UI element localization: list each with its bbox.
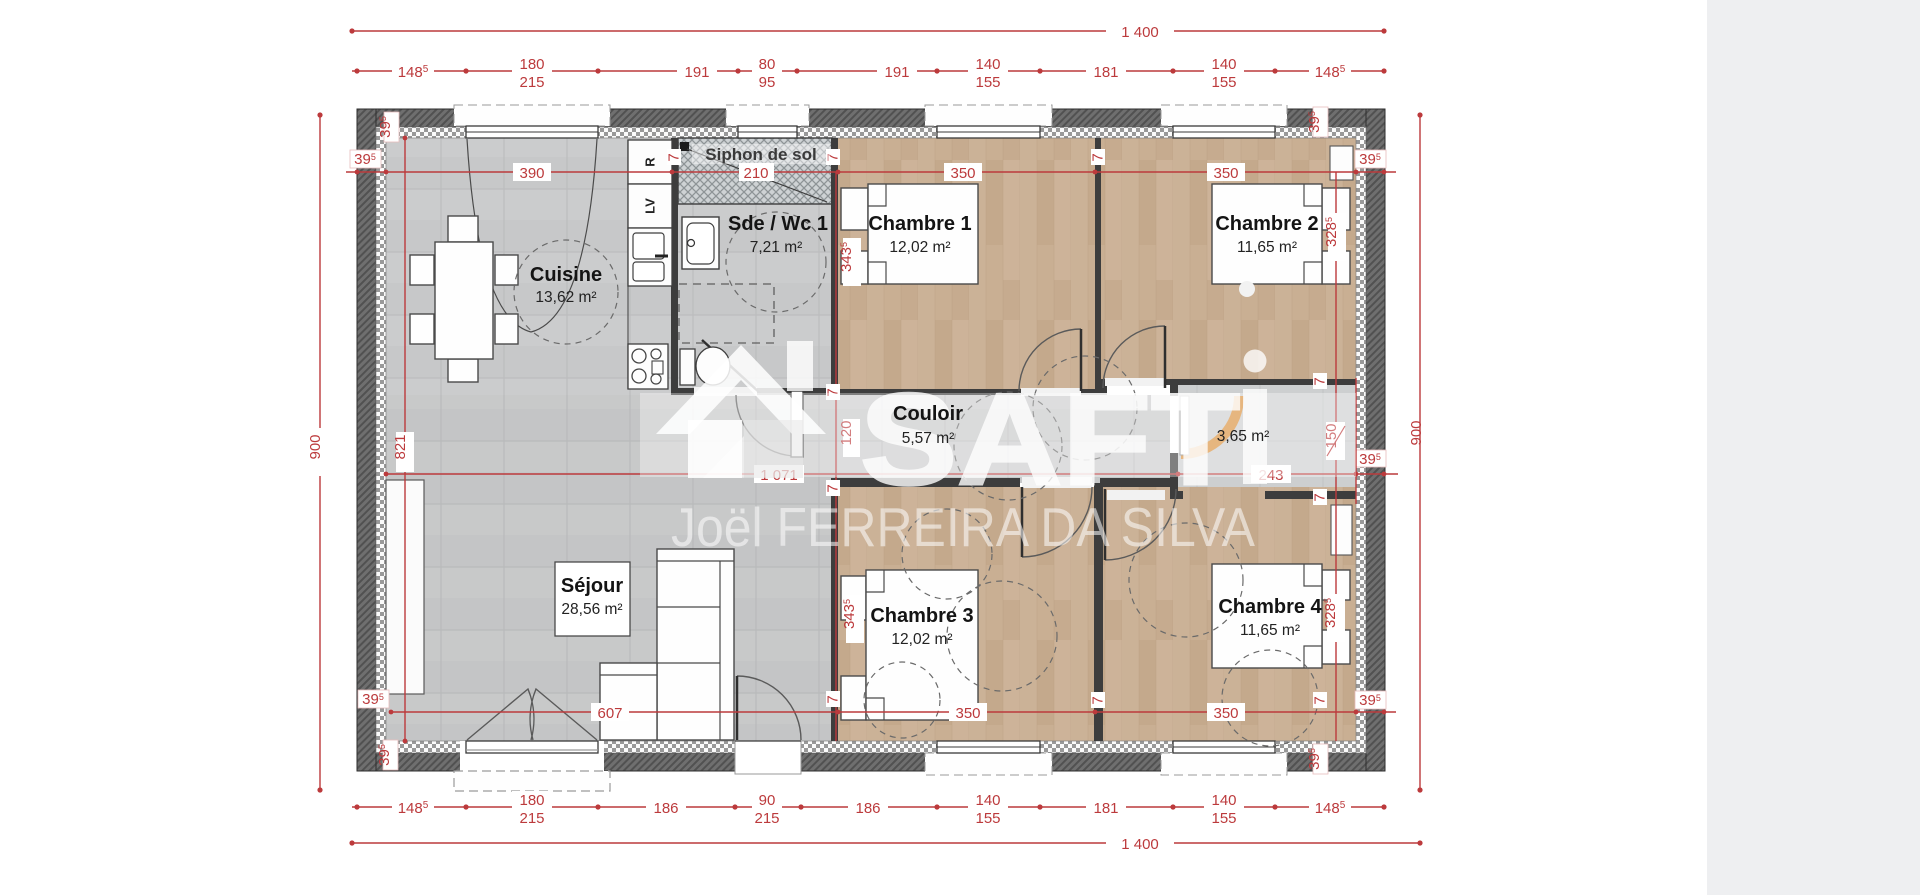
svg-text:90: 90 [759, 792, 776, 809]
svg-text:215: 215 [754, 810, 779, 827]
svg-text:7: 7 [825, 484, 842, 492]
svg-text:215: 215 [519, 810, 544, 827]
svg-text:80: 80 [759, 56, 776, 73]
svg-text:180: 180 [519, 56, 544, 73]
svg-text:180: 180 [519, 792, 544, 809]
svg-text:Cuisine: Cuisine [530, 264, 602, 286]
svg-text:155: 155 [1211, 810, 1236, 827]
svg-text:Joël FERREIRA DA SILVA: Joël FERREIRA DA SILVA [671, 496, 1255, 558]
svg-text:155: 155 [975, 810, 1000, 827]
svg-text:140: 140 [975, 792, 1000, 809]
svg-text:1 400: 1 400 [1121, 24, 1159, 41]
svg-text:11,65 m²: 11,65 m² [1237, 239, 1297, 256]
svg-text:Couloir: Couloir [893, 403, 963, 425]
svg-text:7: 7 [1090, 696, 1107, 704]
svg-text:350: 350 [1213, 165, 1238, 182]
svg-text:350: 350 [1213, 705, 1238, 722]
svg-text:181: 181 [1093, 800, 1118, 817]
svg-text:Chambre 4: Chambre 4 [1218, 596, 1322, 618]
svg-text:12,02 m²: 12,02 m² [889, 239, 950, 256]
svg-text:7: 7 [1312, 696, 1329, 704]
svg-text:821: 821 [392, 434, 409, 459]
svg-text:181: 181 [1093, 64, 1118, 81]
svg-text:155: 155 [975, 74, 1000, 91]
svg-text:12,02 m²: 12,02 m² [891, 631, 952, 648]
svg-text:155: 155 [1211, 74, 1236, 91]
svg-text:Siphon de sol: Siphon de sol [705, 145, 816, 164]
svg-text:390: 390 [519, 165, 544, 182]
svg-text:900: 900 [307, 434, 324, 459]
svg-text:7: 7 [1312, 377, 1329, 385]
svg-text:350: 350 [955, 705, 980, 722]
svg-text:140: 140 [1211, 56, 1236, 73]
svg-text:1 400: 1 400 [1121, 836, 1159, 853]
svg-text:Séjour: Séjour [561, 575, 623, 597]
svg-text:350: 350 [950, 165, 975, 182]
svg-text:210: 210 [743, 165, 768, 182]
svg-text:7: 7 [825, 695, 842, 703]
svg-text:Chambre 1: Chambre 1 [868, 213, 971, 235]
svg-text:95: 95 [759, 74, 776, 91]
svg-text:Chambre 3: Chambre 3 [870, 605, 973, 627]
svg-text:11,65 m²: 11,65 m² [1240, 622, 1300, 639]
svg-text:7: 7 [1312, 493, 1329, 501]
svg-text:191: 191 [884, 64, 909, 81]
svg-text:Sde / Wc 1: Sde / Wc 1 [728, 213, 828, 235]
svg-text:7: 7 [666, 153, 683, 161]
svg-text:13,62 m²: 13,62 m² [535, 289, 596, 306]
svg-text:191: 191 [684, 64, 709, 81]
svg-text:140: 140 [1211, 792, 1236, 809]
svg-text:7,21 m²: 7,21 m² [750, 239, 803, 256]
svg-text:Chambre 2: Chambre 2 [1215, 213, 1318, 235]
svg-text:186: 186 [855, 800, 880, 817]
svg-text:LV: LV [643, 198, 658, 214]
svg-text:186: 186 [653, 800, 678, 817]
svg-text:R: R [643, 157, 658, 167]
svg-text:5,57 m²: 5,57 m² [902, 430, 955, 447]
svg-text:607: 607 [597, 705, 622, 722]
svg-text:900: 900 [1408, 420, 1425, 445]
svg-text:140: 140 [975, 56, 1000, 73]
svg-text:28,56 m²: 28,56 m² [561, 601, 622, 618]
svg-text:215: 215 [519, 74, 544, 91]
svg-text:3,65 m²: 3,65 m² [1217, 428, 1270, 445]
svg-text:7: 7 [1090, 153, 1107, 161]
